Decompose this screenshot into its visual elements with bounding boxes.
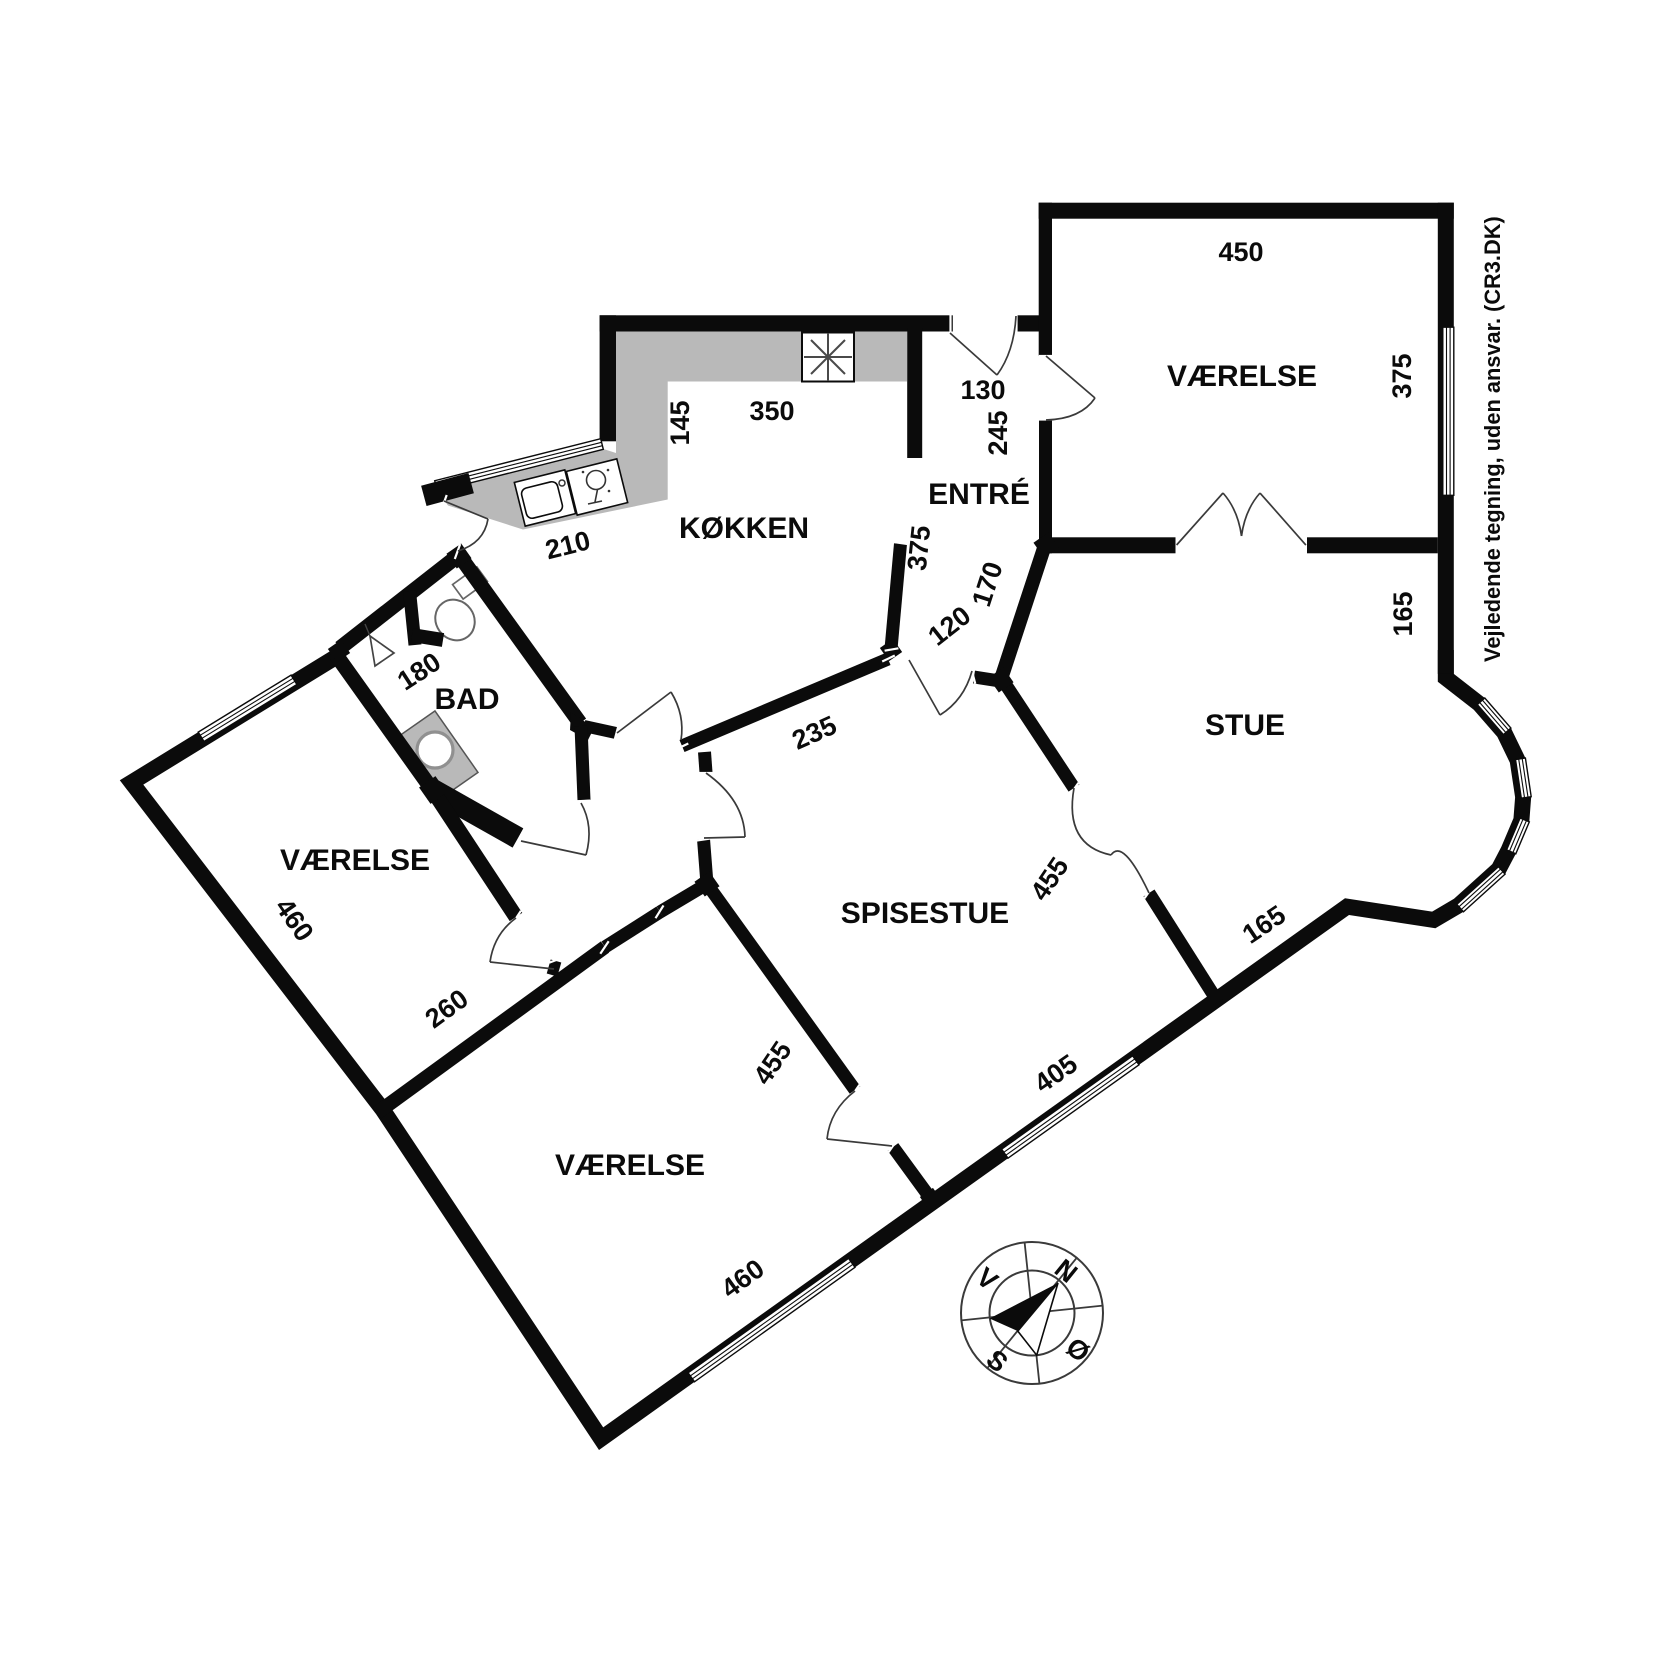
svg-text:BAD: BAD: [435, 683, 500, 716]
svg-text:VÆRELSE: VÆRELSE: [1167, 360, 1317, 393]
svg-text:165: 165: [1388, 591, 1418, 636]
svg-text:245: 245: [983, 410, 1013, 455]
svg-text:450: 450: [1218, 237, 1263, 267]
svg-text:SPISESTUE: SPISESTUE: [841, 897, 1009, 930]
svg-text:VÆRELSE: VÆRELSE: [555, 1149, 705, 1182]
svg-text:ENTRÉ: ENTRÉ: [928, 477, 1030, 511]
svg-text:145: 145: [665, 400, 695, 445]
svg-text:375: 375: [902, 524, 937, 572]
svg-text:KØKKEN: KØKKEN: [679, 512, 809, 545]
svg-text:350: 350: [749, 396, 794, 426]
svg-text:VÆRELSE: VÆRELSE: [280, 844, 430, 877]
svg-text:Vejledende tegning, uden ansva: Vejledende tegning, uden ansvar. (CR3.DK…: [1480, 216, 1505, 662]
svg-text:375: 375: [1387, 353, 1417, 398]
svg-text:130: 130: [960, 375, 1005, 405]
svg-text:STUE: STUE: [1205, 709, 1285, 742]
